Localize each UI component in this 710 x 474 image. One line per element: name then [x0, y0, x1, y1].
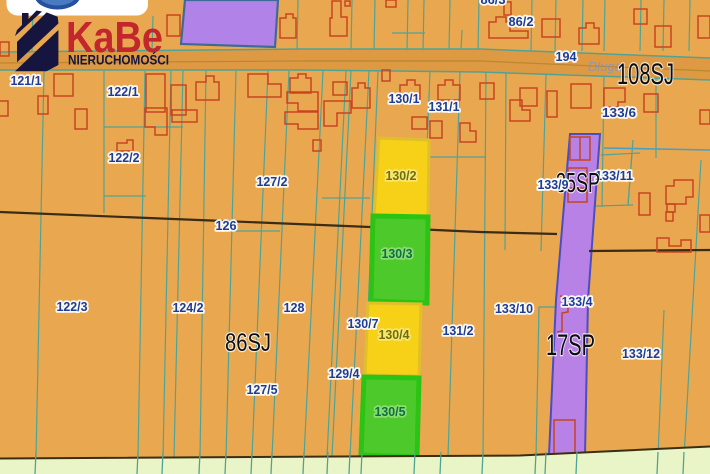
svg-text:131/2: 131/2: [443, 324, 474, 338]
svg-text:130/3: 130/3: [382, 246, 413, 261]
svg-text:130/5: 130/5: [375, 404, 406, 419]
svg-text:122/2: 122/2: [109, 151, 140, 165]
svg-text:122/3: 122/3: [57, 300, 88, 314]
svg-text:133/4: 133/4: [562, 295, 593, 309]
svg-text:133/9: 133/9: [538, 178, 569, 192]
svg-text:133/12: 133/12: [622, 347, 660, 361]
svg-text:130/7: 130/7: [348, 317, 379, 331]
svg-text:108SJ: 108SJ: [617, 58, 674, 91]
svg-text:127/5: 127/5: [247, 383, 278, 397]
svg-text:86/2: 86/2: [509, 15, 534, 29]
svg-text:128: 128: [284, 301, 305, 315]
svg-text:133/6: 133/6: [602, 106, 636, 120]
svg-text:121/1: 121/1: [11, 74, 42, 88]
svg-text:86/3: 86/3: [481, 0, 506, 7]
svg-text:86SJ: 86SJ: [225, 329, 271, 357]
svg-text:17SP: 17SP: [546, 329, 595, 362]
svg-text:NIERUCHOMOŚCI: NIERUCHOMOŚCI: [68, 51, 169, 68]
svg-text:131/1: 131/1: [429, 100, 460, 114]
svg-text:194: 194: [556, 50, 577, 64]
svg-text:122/1: 122/1: [108, 85, 139, 99]
svg-text:127/2: 127/2: [257, 175, 288, 189]
svg-text:133/10: 133/10: [495, 302, 533, 316]
svg-text:124/2: 124/2: [173, 301, 204, 315]
svg-text:133/11: 133/11: [595, 169, 633, 183]
svg-text:130/4: 130/4: [379, 327, 411, 342]
svg-text:130/2: 130/2: [386, 168, 417, 183]
svg-text:130/1: 130/1: [389, 92, 420, 106]
svg-text:126: 126: [216, 219, 237, 233]
svg-text:129/4: 129/4: [329, 367, 360, 381]
